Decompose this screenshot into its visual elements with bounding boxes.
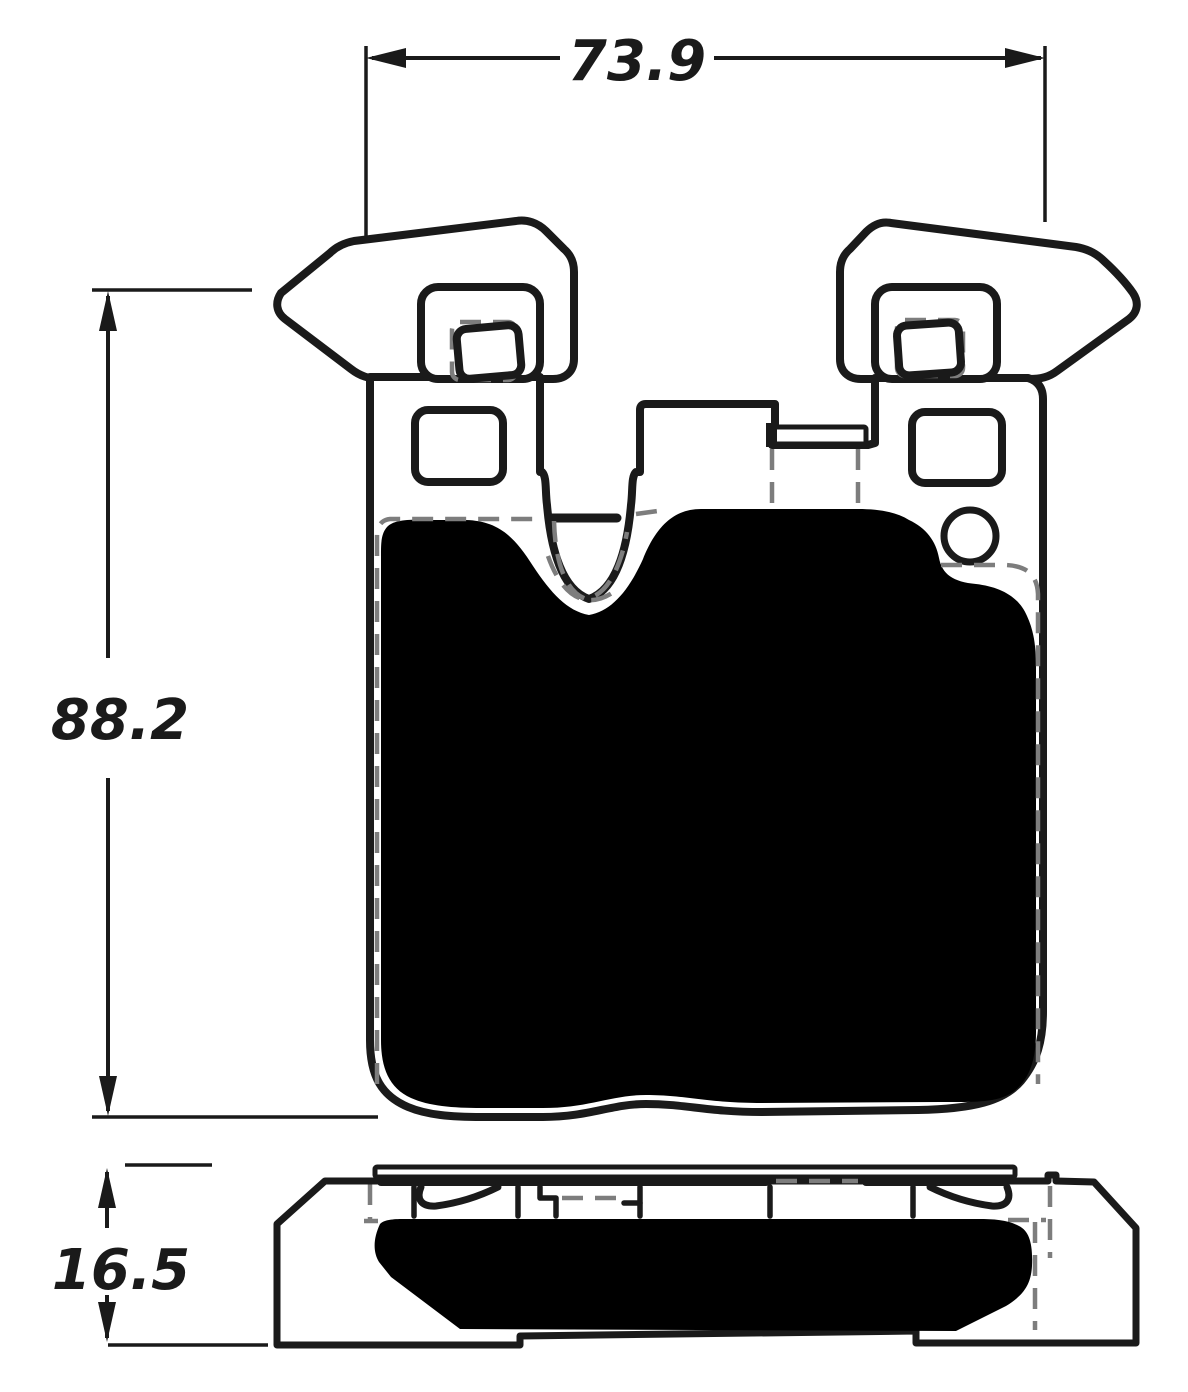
brake-pad-technical-drawing: 73.9 88.2 16.5 [0,0,1188,1392]
arrow-down-icon [98,1302,116,1342]
left-tab-hole [456,324,522,379]
spring-bar [770,427,866,444]
side-backing-plate [375,1167,1015,1177]
arrow-right-icon [1005,48,1045,68]
side-step-edges [518,1187,770,1216]
arrow-up-icon [99,291,117,331]
dimension-width: 73.9 [366,29,1045,240]
arrow-up-icon [98,1168,116,1208]
right-abutment-hole [912,412,1002,483]
left-clip [419,1187,498,1206]
dimension-thickness: 16.5 [52,1165,268,1345]
wear-sensor-hole [944,510,996,562]
side-plate-band-left [377,1177,770,1186]
side-view [277,1167,1136,1345]
side-friction-material [375,1219,1033,1331]
front-view [277,220,1137,1117]
friction-material [381,509,1036,1108]
arrow-down-icon [99,1076,117,1116]
right-clip [930,1187,1009,1206]
side-plate-band-right [862,1177,1008,1186]
left-abutment-hole [415,410,503,482]
dimension-height: 88.2 [51,290,378,1117]
dim-width-label: 73.9 [568,29,706,94]
arrow-left-icon [366,48,406,68]
spring-bar-cap [766,423,777,447]
dim-height-label: 88.2 [51,688,189,753]
dim-thickness-label: 16.5 [52,1238,190,1303]
right-tab-hole [896,322,961,376]
